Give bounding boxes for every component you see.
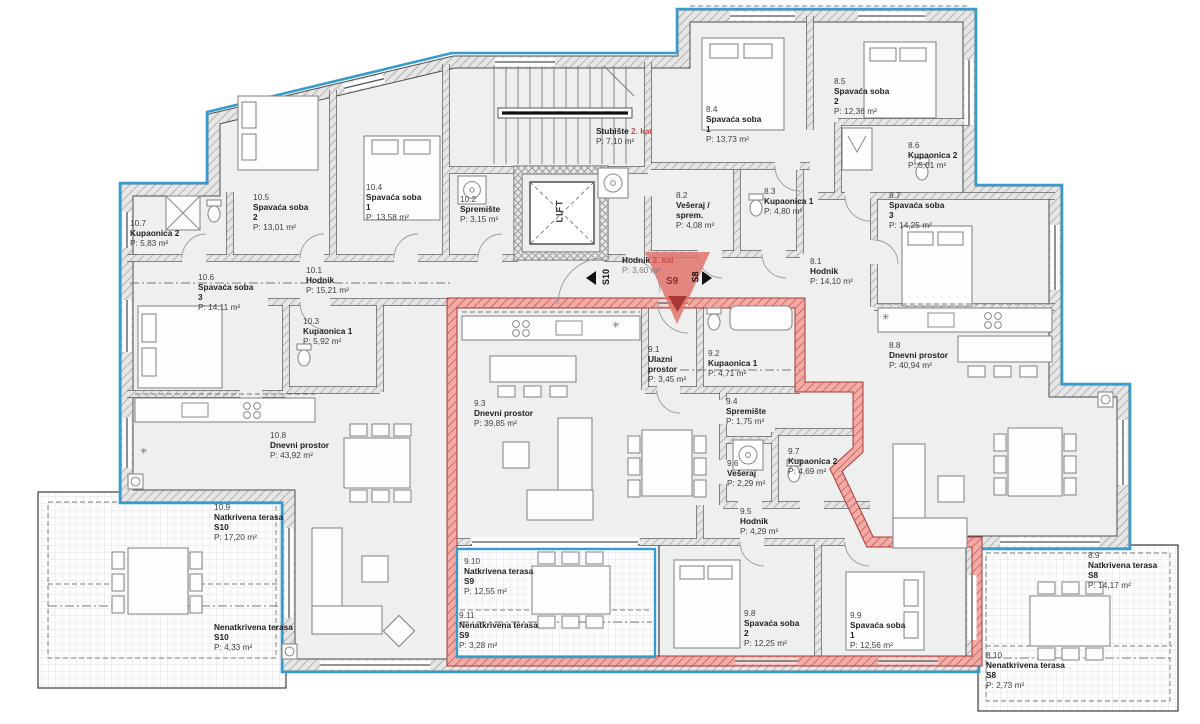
room-label-10-5: 10.5Spavaća soba 2P: 13,01 m² [253,192,315,232]
floor-plan: 10.1HodnikP: 15,21 m² 10.2SpremišteP: 3,… [0,0,1200,724]
nav-left-label: S10 [601,269,611,285]
room-label-8-4: 8.4Spavaća soba 1P: 13,73 m² [706,104,768,144]
unit-marker-label: S9 [666,276,678,287]
room-label-8-9: 8.9Natkrivena terasa S8P: 14,17 m² [1088,550,1162,590]
floor-plan-drawing [0,0,1200,724]
room-label-8-5: 8.5Spavaća soba 2P: 12,36 m² [834,76,896,116]
room-label-8-1: 8.1HodnikP: 14,10 m² [810,256,872,286]
fridge-icon: ✳ [140,446,148,457]
room-label-9-5: 9.5HodnikP: 4,29 m² [740,506,796,536]
room-label-8-2: 8.2Vešeraj / sprem.P: 4,08 m² [676,190,736,230]
room-label-10-7: 10.7Kupaonica 2P: 5,83 m² [130,218,208,248]
room-label-9-1: 9.1Ulazni prostorP: 3,45 m² [648,344,700,384]
room-label-8-10: 8.10Nenatkrivena terasa S8P: 2,73 m² [986,650,1076,690]
room-label-10-1: 10.1HodnikP: 15,21 m² [306,265,368,295]
room-label-10-3: 10.3Kupaonica 1P: 5,92 m² [303,316,375,346]
room-label-9-2: 9.2Kupaonica 1P: 4,71 m² [708,348,780,378]
room-label-10-9: 10.9Natkrivena terasa S10P: 17,20 m² [214,502,292,542]
room-label-9-4: 9.4SpremišteP: 1,75 m² [726,396,786,426]
room-label-9-7: 9.7Kupaonica 2P: 4,69 m² [788,446,860,476]
room-label-9-10: 9.10Natkrivena terasa S9P: 12,55 m² [464,556,540,596]
room-label-10-6: 10.6Spavaća soba 3P: 14,11 m² [198,272,260,312]
room-label-9-9: 9.9Spavaća soba 1P: 12,56 m² [850,610,912,650]
room-label-8-8: 8.8Dnevni prostorP: 40,94 m² [889,340,951,370]
room-label-8-3: 8.3Kupaonica 1P: 4,80 m² [764,186,836,216]
fridge-icon: ✳ [882,312,890,323]
lift-label: LIFT [555,200,565,223]
room-label-terasa-s10-nenatkrivena: Nenatkrivena terasa S10P: 4,33 m² [214,622,302,652]
stairs-label: Stubište 2. kat P: 7,10 m² [596,126,654,146]
room-label-8-7: 8.7Spavaća soba 3P: 14,25 m² [889,190,951,230]
room-label-9-6: 9.6VešerajP: 2,29 m² [727,458,781,488]
nav-right-label: S8 [691,271,701,282]
room-label-9-11: 9.11Nenatkrivena terasa S9P: 3,28 m² [459,610,549,650]
room-label-10-8: 10.8Dnevni prostorP: 43,92 m² [270,430,332,460]
room-label-9-8: 9.8Spavaća soba 2P: 12,25 m² [744,608,806,648]
room-label-9-3: 9.3Dnevni prostorP: 39,85 m² [474,398,536,428]
room-label-10-4: 10.4Spavaća soba 1P: 13,58 m² [366,182,428,222]
room-label-8-6: 8.6Kupaonica 2P: 5,01 m² [908,140,982,170]
room-label-10-2: 10.2SpremišteP: 3,15 m² [460,194,518,224]
fridge-icon: ✳ [612,320,620,331]
